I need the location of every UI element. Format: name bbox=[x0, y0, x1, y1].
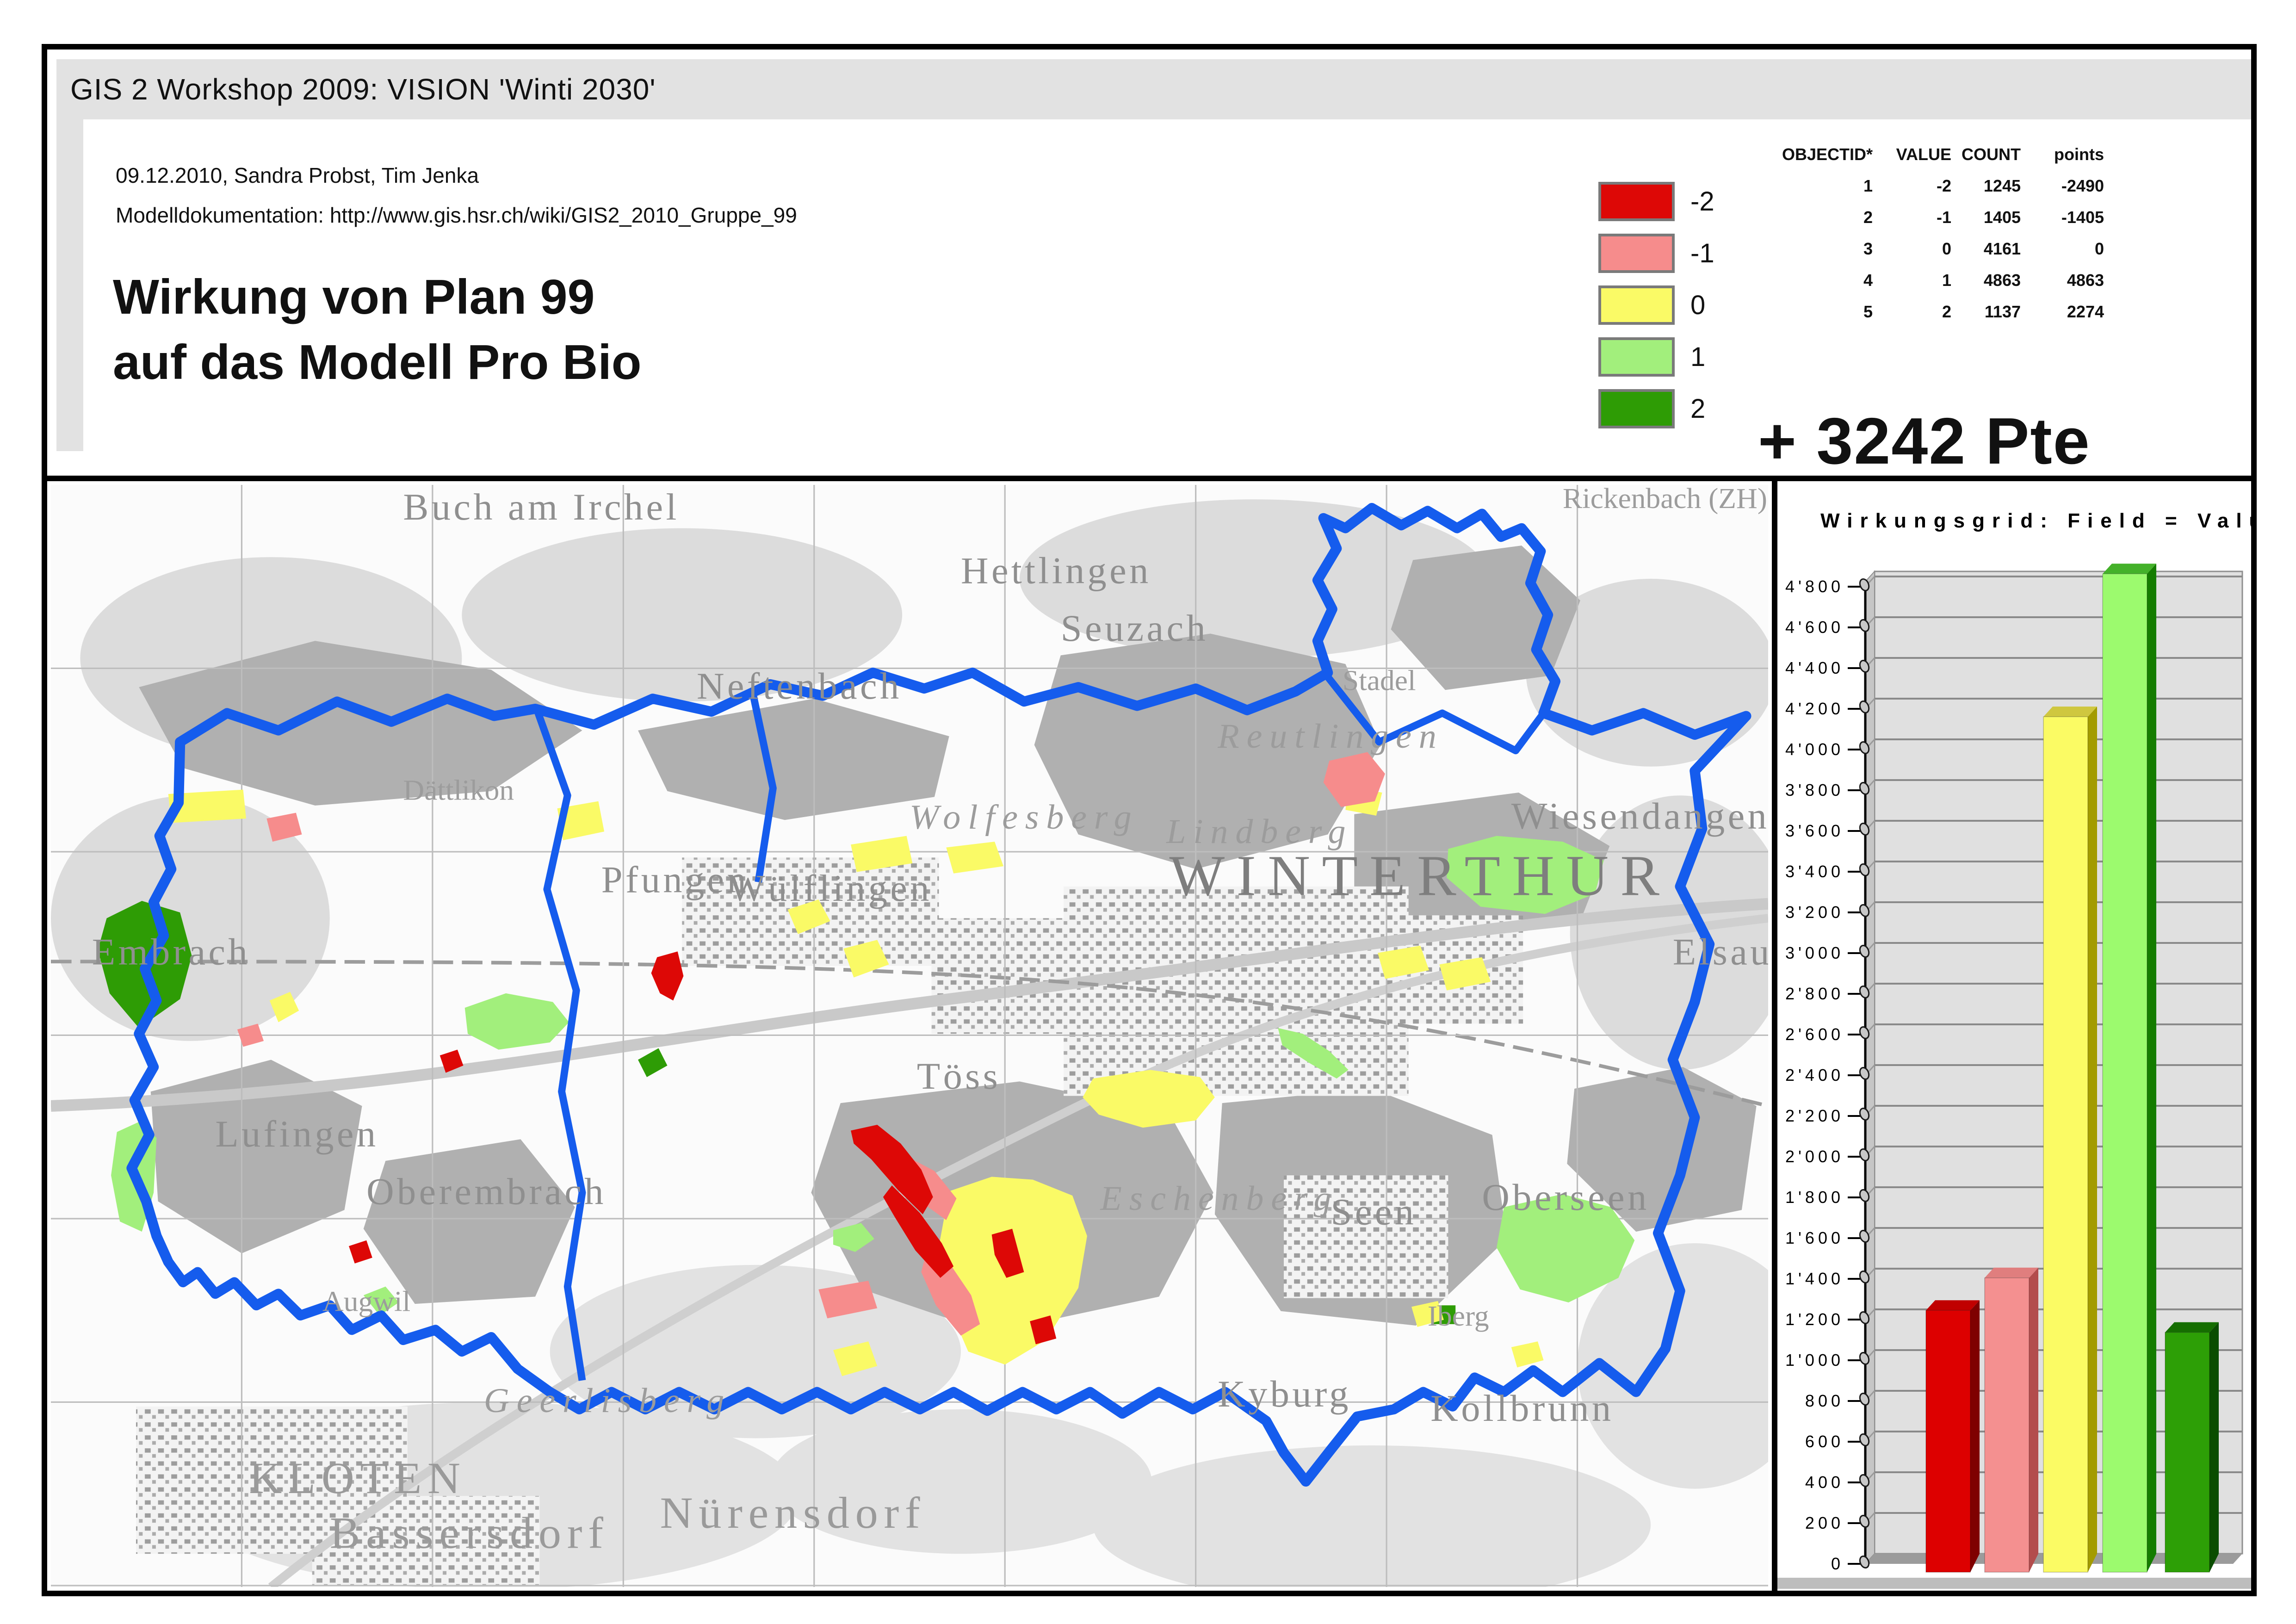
map-label: Lufingen bbox=[215, 1113, 378, 1154]
table-header: COUNT bbox=[1951, 139, 2021, 170]
table-cell: -1 bbox=[1873, 202, 1951, 233]
poster-title: Wirkung von Plan 99 auf das Modell Pro B… bbox=[113, 265, 642, 395]
vertical-divider bbox=[1772, 481, 1777, 1591]
map-label: Oberseen bbox=[1482, 1177, 1649, 1218]
header-bar: GIS 2 Workshop 2009: VISION 'Winti 2030' bbox=[56, 59, 2251, 119]
topographic-map: Rickenbach (ZH)Buch am IrchelHettlingenS… bbox=[51, 485, 1768, 1587]
y-axis-tick-label: 3'800 bbox=[1785, 781, 1844, 800]
table-cell: 0 bbox=[1873, 233, 1951, 265]
table-row: 4148634863 bbox=[1780, 265, 2104, 296]
value-count-table: OBJECTID*VALUECOUNTpoints1-21245-24902-1… bbox=[1780, 139, 2104, 328]
table-cell: 0 bbox=[2021, 233, 2104, 265]
map-label: Buch am Irchel bbox=[403, 486, 679, 528]
bar-side bbox=[2029, 1268, 2038, 1572]
poster-title-line2: auf das Modell Pro Bio bbox=[113, 330, 642, 395]
impact-patch-value-2 bbox=[638, 1048, 667, 1077]
map-label: Rickenbach (ZH) bbox=[1563, 485, 1767, 514]
table-cell: 2274 bbox=[2021, 296, 2104, 328]
y-axis-tick-label: 3'200 bbox=[1785, 903, 1844, 922]
legend-label: 2 bbox=[1690, 393, 1705, 424]
legend-label: 0 bbox=[1690, 290, 1705, 321]
map-label: Augwil bbox=[322, 1285, 410, 1317]
value-legend: -2-1012 bbox=[1598, 182, 1714, 441]
header-left-strip bbox=[56, 119, 83, 451]
table-cell: 1 bbox=[1780, 170, 1873, 202]
impact-patch-value-1 bbox=[465, 993, 569, 1050]
map-label: Embrach bbox=[92, 931, 250, 973]
legend-swatch bbox=[1598, 182, 1675, 221]
bar-top bbox=[1985, 1268, 2038, 1278]
table-cell: 4 bbox=[1780, 265, 1873, 296]
total-points: + 3242 Pte bbox=[1758, 403, 2091, 479]
map-label: KLOTEN bbox=[249, 1454, 466, 1503]
legend-swatch bbox=[1598, 389, 1675, 428]
table-row: 2-11405-1405 bbox=[1780, 202, 2104, 233]
table-cell: 1 bbox=[1873, 265, 1951, 296]
y-axis-tick-label: 4'800 bbox=[1785, 577, 1844, 596]
bar-value-2 bbox=[2165, 1333, 2209, 1572]
y-axis-tick-label: 2'400 bbox=[1785, 1066, 1844, 1085]
bar-side bbox=[1970, 1300, 1980, 1572]
map-label: Seuzach bbox=[1061, 607, 1208, 649]
table-header: VALUE bbox=[1873, 139, 1951, 170]
legend-item: 2 bbox=[1598, 389, 1714, 428]
chart-panel: Wirkungsgrid: Field = Value0200400600800… bbox=[1777, 481, 2251, 1591]
legend-swatch bbox=[1598, 234, 1675, 273]
legend-item: 1 bbox=[1598, 337, 1714, 377]
legend-item: 0 bbox=[1598, 285, 1714, 325]
documentation-url: Modelldokumentation: http://www.gis.hsr.… bbox=[116, 203, 797, 228]
y-axis-tick-label: 800 bbox=[1805, 1391, 1844, 1410]
y-axis-tick-label: 1'400 bbox=[1785, 1269, 1844, 1288]
legend-item: -2 bbox=[1598, 182, 1714, 221]
horizontal-divider bbox=[47, 476, 2251, 481]
y-axis-tick-label: 200 bbox=[1805, 1513, 1844, 1532]
impact-bar-chart: Wirkungsgrid: Field = Value0200400600800… bbox=[1777, 481, 2251, 1591]
table-cell: -1405 bbox=[2021, 202, 2104, 233]
map-label: Kyburg bbox=[1218, 1373, 1351, 1414]
table-row: 3041610 bbox=[1780, 233, 2104, 265]
y-axis-tick-label: 1'600 bbox=[1785, 1228, 1844, 1247]
y-axis-tick-label: 1'200 bbox=[1785, 1310, 1844, 1329]
map-label: Geerlisberg bbox=[484, 1382, 731, 1420]
table-cell: 2 bbox=[1780, 202, 1873, 233]
map-label: Bassersdorf bbox=[330, 1508, 609, 1558]
legend-label: -2 bbox=[1690, 186, 1714, 217]
map-label: Hettlingen bbox=[961, 550, 1151, 591]
table-cell: -2490 bbox=[2021, 170, 2104, 202]
y-axis-tick-label: 2'800 bbox=[1785, 984, 1844, 1003]
table-row: 1-21245-2490 bbox=[1780, 170, 2104, 202]
map-label: Reutlingen bbox=[1217, 718, 1443, 756]
table-cell: 2 bbox=[1873, 296, 1951, 328]
map-label: Dättlikon bbox=[403, 774, 514, 806]
poster-title-line1: Wirkung von Plan 99 bbox=[113, 265, 642, 330]
table-cell: 1405 bbox=[1951, 202, 2021, 233]
impact-patch-value--2 bbox=[349, 1240, 372, 1264]
map-panel: Rickenbach (ZH)Buch am IrchelHettlingenS… bbox=[47, 481, 1772, 1591]
bar-value-1 bbox=[2103, 574, 2147, 1572]
y-axis-tick-label: 4'600 bbox=[1785, 618, 1844, 637]
table-cell: 4161 bbox=[1951, 233, 2021, 265]
y-axis-tick-label: 3'000 bbox=[1785, 943, 1844, 962]
map-label: Wolfesberg bbox=[910, 799, 1139, 837]
bar-side bbox=[2147, 564, 2156, 1572]
impact-patch-value--2 bbox=[651, 951, 684, 1000]
map-label: Wiesendangen bbox=[1511, 795, 1768, 837]
map-label: Nürensdorf bbox=[660, 1488, 926, 1538]
impact-patch-value-0 bbox=[1511, 1341, 1544, 1367]
y-axis-tick-label: 3'400 bbox=[1785, 862, 1844, 881]
bar-value-0 bbox=[2043, 717, 2088, 1572]
table-cell: 3 bbox=[1780, 233, 1873, 265]
chart-panel-footer-strip bbox=[1777, 1578, 2251, 1589]
table-cell: -2 bbox=[1873, 170, 1951, 202]
legend-item: -1 bbox=[1598, 234, 1714, 273]
bar-top bbox=[2043, 707, 2097, 717]
map-label: Kollbrunn bbox=[1430, 1388, 1614, 1429]
map-label: Wülflingen bbox=[729, 868, 932, 909]
table-cell: 4863 bbox=[2021, 265, 2104, 296]
map-label: Neftenbach bbox=[697, 665, 902, 707]
y-axis-tick-label: 0 bbox=[1831, 1554, 1844, 1573]
map-label: Iberg bbox=[1428, 1300, 1489, 1332]
workshop-title: GIS 2 Workshop 2009: VISION 'Winti 2030' bbox=[70, 72, 656, 106]
map-label: Stadel bbox=[1343, 664, 1416, 696]
y-axis-tick-label: 2'000 bbox=[1785, 1147, 1844, 1166]
map-label: Seen bbox=[1331, 1191, 1417, 1233]
legend-swatch bbox=[1598, 337, 1675, 377]
table-cell: 5 bbox=[1780, 296, 1873, 328]
map-label: Töss bbox=[917, 1055, 1001, 1097]
table-header: points bbox=[2021, 139, 2104, 170]
y-axis-tick-label: 4'200 bbox=[1785, 699, 1844, 718]
y-axis-tick-label: 3'600 bbox=[1785, 821, 1844, 840]
y-axis-tick-label: 600 bbox=[1805, 1432, 1844, 1451]
y-axis-tick-label: 400 bbox=[1805, 1473, 1844, 1492]
legend-swatch bbox=[1598, 285, 1675, 325]
map-label: Pfungen bbox=[601, 859, 749, 900]
map-label: Elsau bbox=[1673, 931, 1768, 973]
bar-top bbox=[2103, 564, 2156, 574]
impact-patch-value--1 bbox=[266, 813, 302, 842]
impact-patch-value-0 bbox=[946, 842, 1003, 874]
map-label: Oberembrach bbox=[366, 1171, 606, 1212]
bar-top bbox=[1926, 1300, 1980, 1310]
bar-side bbox=[2209, 1322, 2219, 1572]
y-axis-tick-label: 4'400 bbox=[1785, 658, 1844, 677]
legend-label: -1 bbox=[1690, 238, 1714, 269]
table-row: 5211372274 bbox=[1780, 296, 2104, 328]
bar-value--2 bbox=[1926, 1310, 1970, 1572]
y-axis-tick-label: 2'600 bbox=[1785, 1025, 1844, 1044]
bar-top bbox=[2165, 1322, 2219, 1333]
legend-label: 1 bbox=[1690, 341, 1705, 372]
map-label: WINTERTHUR bbox=[1170, 844, 1671, 908]
bar-side bbox=[2088, 707, 2097, 1572]
y-axis-tick-label: 2'200 bbox=[1785, 1106, 1844, 1125]
y-axis-tick-label: 4'000 bbox=[1785, 740, 1844, 759]
chart-title: Wirkungsgrid: Field = Value bbox=[1820, 509, 2251, 532]
y-axis-tick-label: 1'000 bbox=[1785, 1351, 1844, 1370]
table-cell: 4863 bbox=[1951, 265, 2021, 296]
bar-value--1 bbox=[1985, 1278, 2029, 1572]
table-header: OBJECTID* bbox=[1780, 139, 1873, 170]
y-axis-tick-label: 1'800 bbox=[1785, 1188, 1844, 1207]
map-label: Eschenberg bbox=[1100, 1180, 1338, 1218]
table-cell: 1245 bbox=[1951, 170, 2021, 202]
table-cell: 1137 bbox=[1951, 296, 2021, 328]
date-authors: 09.12.2010, Sandra Probst, Tim Jenka bbox=[116, 163, 479, 188]
